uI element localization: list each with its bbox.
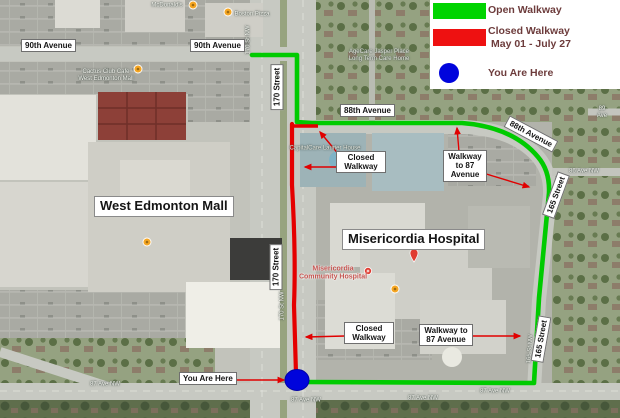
label-closed-walkway-top: Closed Walkway	[336, 151, 386, 173]
orange-pin	[224, 8, 232, 16]
label-walkway-to-87-top: Walkway to 87 Avenue	[443, 150, 487, 182]
closed-walkway-swatch	[433, 29, 486, 46]
helipad	[442, 347, 462, 367]
orange-pin	[189, 1, 197, 9]
street-label-89ave: 89 Ave	[593, 106, 611, 120]
open-walkway-swatch	[433, 3, 486, 19]
label-you-are-here: You Are Here	[179, 372, 237, 385]
street-label-87ave: 87 Ave NW	[480, 388, 510, 395]
label-90th-avenue-mid: 90th Avenue	[190, 39, 245, 52]
label-88th-avenue: 88th Avenue	[340, 104, 395, 117]
legend-here-label: You Are Here	[488, 67, 553, 79]
legend: Open Walkway Closed Walkway May 01 - Jul…	[430, 0, 620, 89]
legend-closed-label: Closed Walkway	[488, 25, 570, 37]
orange-pin	[391, 285, 399, 293]
label-misericordia-hospital: Misericordia Hospital	[342, 229, 485, 250]
poi-label-cactus-club: Cactus Club Cafe West Edmonton Mall	[78, 69, 133, 83]
label-west-edmonton-mall: West Edmonton Mall	[94, 196, 234, 217]
poi-label-care-home: AgeCare Jasper Place Long Term Care Home	[349, 49, 410, 63]
poi-label-misericordia-community: Misericordia Community Hospital	[299, 266, 367, 283]
label-170-street-top: 170 Street	[271, 64, 284, 110]
label-170-street-bottom: 170 Street	[270, 244, 283, 290]
street-label-170st: 170 St NW	[279, 291, 286, 320]
street-label-87ave: 87 Ave NW	[408, 395, 438, 402]
poi-label-mcdonalds: McDonald's	[151, 2, 182, 9]
street-label-170st: 170 St NW	[245, 25, 252, 54]
red-roof-building	[98, 92, 186, 140]
you-are-here-marker	[285, 370, 309, 391]
label-walkway-to-87-bottom: Walkway to 87 Avenue	[419, 324, 473, 346]
poi-label-boston-pizza: Boston Pizza	[234, 11, 269, 18]
legend-open-label: Open Walkway	[488, 4, 562, 16]
street-label-87ave: 87 Ave NW	[291, 397, 321, 404]
map-screenshot: McDonald's Boston Pizza Cactus Club Cafe…	[0, 0, 620, 418]
legend-closed-dates: May 01 - July 27	[491, 38, 571, 50]
street-label-86ave: 86 Ave NW	[569, 168, 599, 175]
orange-pin	[134, 65, 142, 73]
you-are-here-swatch	[439, 63, 459, 83]
label-90th-avenue-left: 90th Avenue	[21, 39, 76, 52]
label-closed-walkway-bottom: Closed Walkway	[344, 322, 394, 344]
street-label-87ave: 87 Ave NW	[90, 381, 120, 388]
orange-pin	[143, 238, 151, 246]
